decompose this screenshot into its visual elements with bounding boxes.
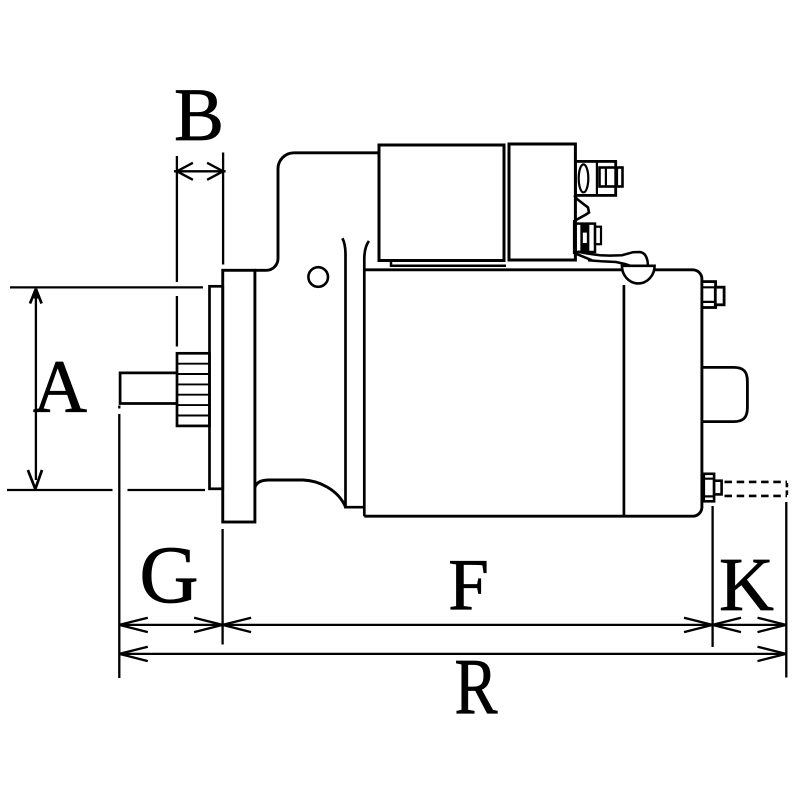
svg-text:A: A — [33, 346, 87, 429]
svg-text:G: G — [139, 529, 198, 620]
svg-text:B: B — [174, 74, 224, 157]
svg-text:K: K — [719, 543, 774, 627]
svg-text:F: F — [448, 544, 489, 625]
svg-text:R: R — [455, 645, 498, 732]
